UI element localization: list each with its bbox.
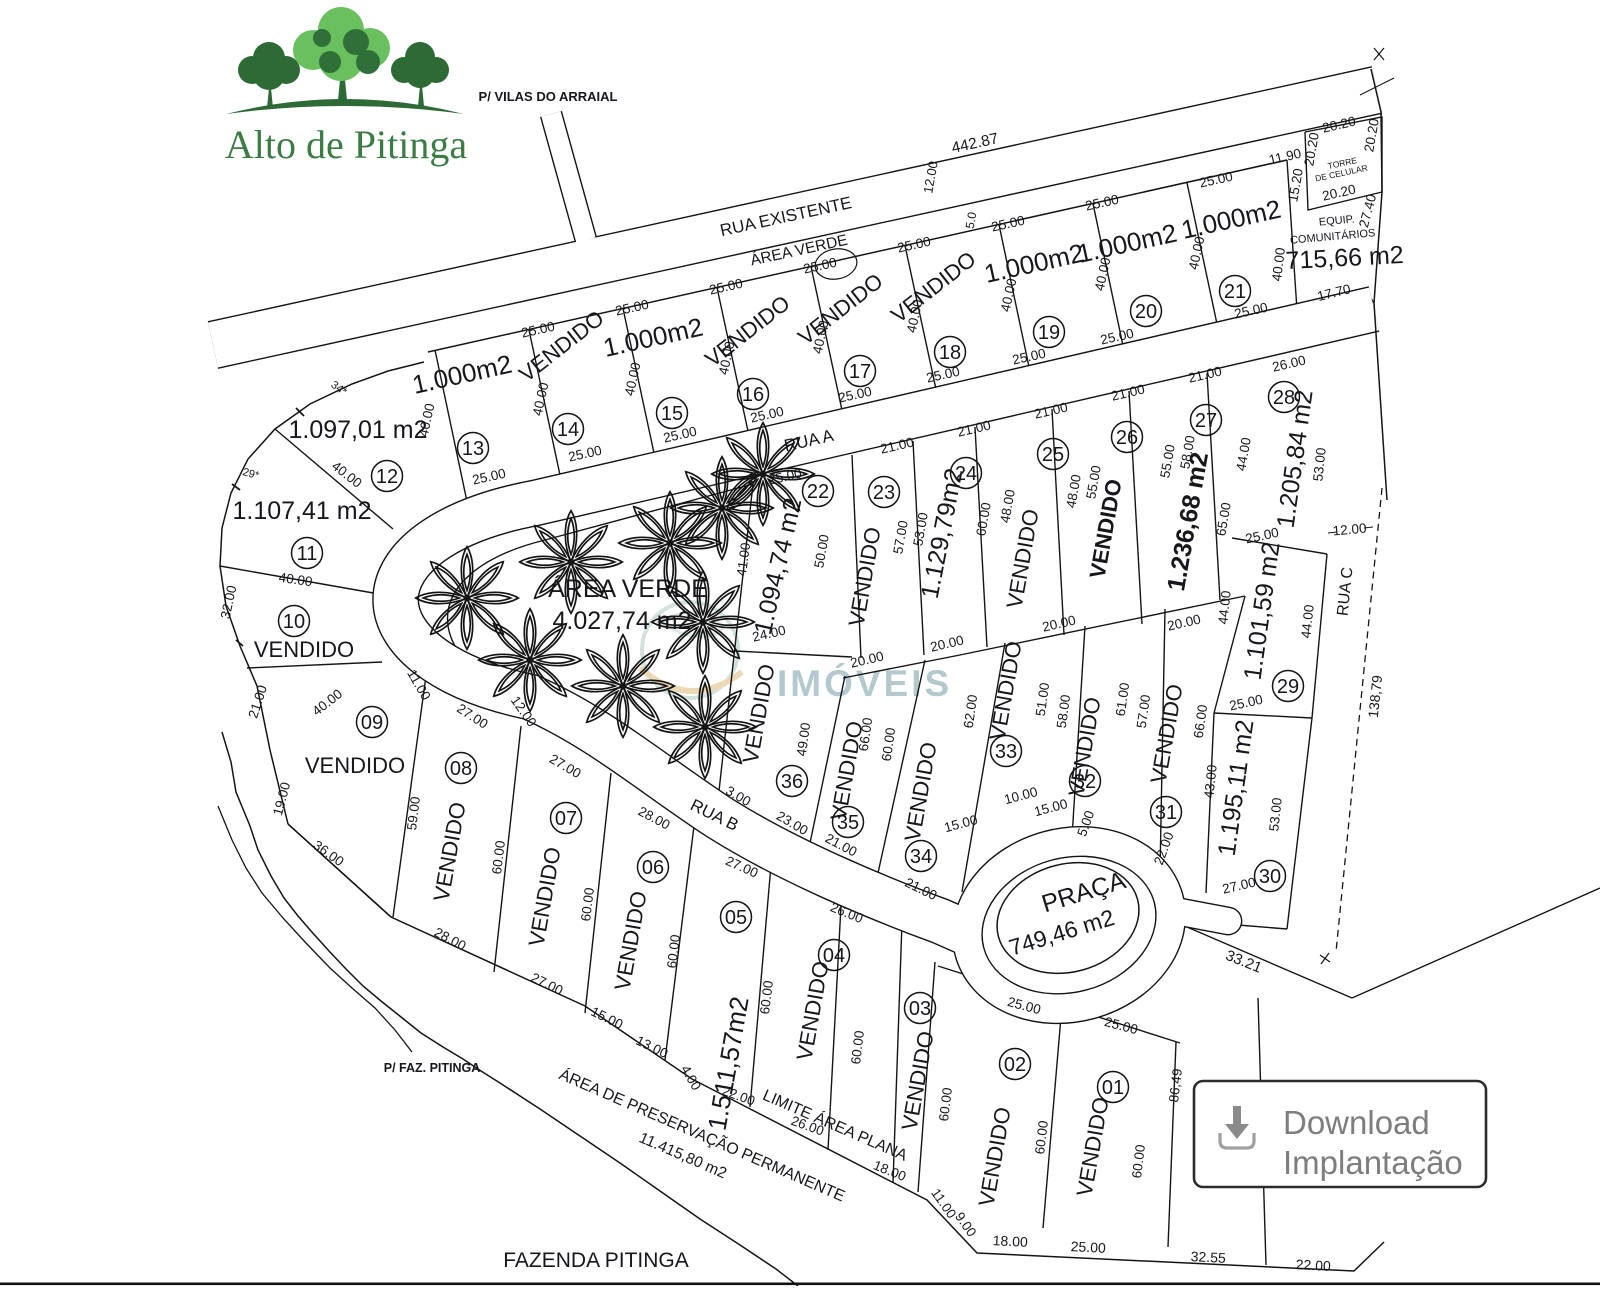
- svg-text:11: 11: [297, 543, 318, 565]
- svg-text:P/ VILAS DO ARRAIAL: P/ VILAS DO ARRAIAL: [479, 89, 618, 104]
- svg-text:1.097,01 m2: 1.097,01 m2: [289, 416, 428, 444]
- svg-text:10: 10: [283, 611, 305, 633]
- svg-text:22.00: 22.00: [1295, 1256, 1331, 1274]
- svg-text:Implantação: Implantação: [1283, 1144, 1463, 1181]
- svg-text:26: 26: [1116, 427, 1138, 449]
- svg-text:VENDIDO: VENDIDO: [254, 637, 354, 662]
- svg-text:25: 25: [1042, 444, 1064, 466]
- svg-text:05: 05: [725, 907, 747, 929]
- svg-text:18: 18: [939, 342, 961, 364]
- svg-text:12.00: 12.00: [1332, 521, 1367, 539]
- svg-text:Download: Download: [1283, 1104, 1430, 1141]
- svg-text:P/ FAZ. PITINGA: P/ FAZ. PITINGA: [384, 1061, 481, 1075]
- svg-text:18.00: 18.00: [992, 1232, 1028, 1250]
- svg-text:20: 20: [1135, 301, 1157, 323]
- svg-text:27: 27: [1195, 410, 1217, 432]
- svg-text:02: 02: [1004, 1054, 1026, 1076]
- svg-text:14: 14: [557, 419, 579, 441]
- svg-text:36: 36: [781, 771, 803, 793]
- svg-text:FAZENDA PITINGA: FAZENDA PITINGA: [503, 1249, 689, 1272]
- svg-text:33: 33: [995, 741, 1017, 763]
- svg-text:07: 07: [555, 808, 577, 830]
- svg-text:16: 16: [742, 384, 764, 406]
- svg-text:29: 29: [1277, 676, 1299, 698]
- svg-text:01: 01: [1102, 1077, 1124, 1099]
- svg-text:09: 09: [361, 712, 383, 734]
- svg-text:30: 30: [1259, 866, 1281, 888]
- svg-text:4.027,74 m2: 4.027,74 m2: [553, 607, 692, 635]
- svg-text:25.00: 25.00: [1070, 1238, 1106, 1256]
- svg-text:03: 03: [909, 998, 931, 1020]
- svg-text:19: 19: [1038, 322, 1060, 344]
- svg-text:23: 23: [873, 482, 895, 504]
- svg-text:VENDIDO: VENDIDO: [305, 753, 405, 778]
- svg-text:06: 06: [642, 857, 664, 879]
- svg-text:34: 34: [910, 846, 932, 868]
- svg-text:5.0: 5.0: [963, 211, 980, 230]
- svg-text:21: 21: [1224, 281, 1246, 303]
- svg-text:22: 22: [807, 481, 829, 503]
- svg-text:31: 31: [1155, 802, 1177, 824]
- svg-text:13: 13: [462, 438, 484, 460]
- svg-text:15: 15: [661, 403, 683, 425]
- svg-text:12: 12: [376, 466, 398, 488]
- svg-text:Alto de Pitinga: Alto de Pitinga: [225, 122, 467, 167]
- svg-text:32.55: 32.55: [1190, 1248, 1226, 1266]
- svg-text:IMÓVEIS: IMÓVEIS: [777, 662, 952, 704]
- svg-text:1.107,41 m2: 1.107,41 m2: [233, 497, 372, 525]
- svg-text:08: 08: [450, 758, 472, 780]
- svg-text:17: 17: [849, 361, 871, 383]
- svg-text:ÁREA VERDE: ÁREA VERDE: [548, 574, 708, 603]
